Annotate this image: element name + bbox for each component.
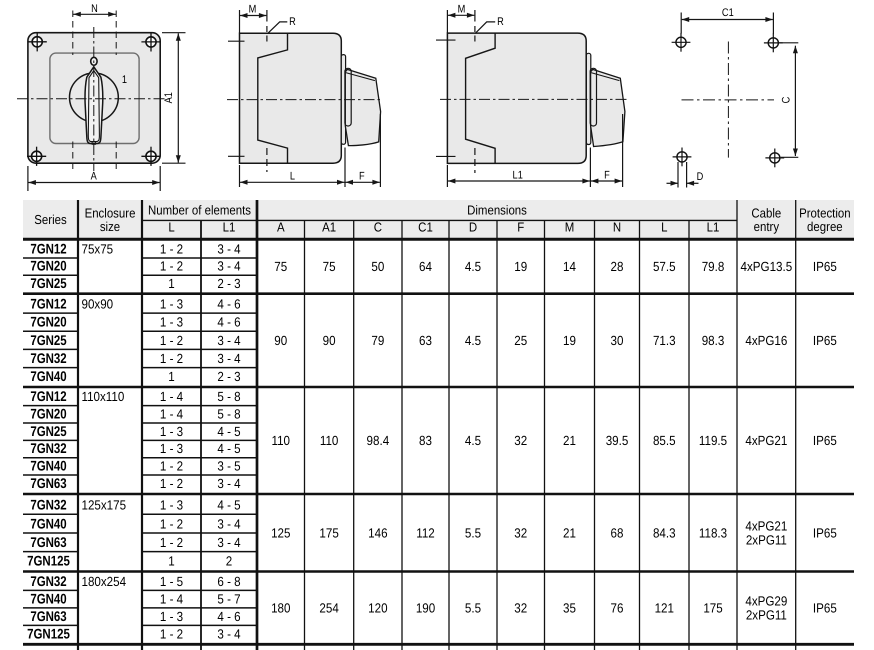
- svg-text:1 - 3: 1 - 3: [160, 498, 183, 513]
- svg-text:7GN32: 7GN32: [30, 497, 67, 513]
- svg-text:1 - 2: 1 - 2: [160, 259, 183, 274]
- svg-text:7GN32: 7GN32: [30, 573, 67, 589]
- svg-text:2xPG11: 2xPG11: [746, 533, 787, 548]
- svg-text:5.5: 5.5: [465, 526, 481, 541]
- svg-text:3 - 4: 3 - 4: [217, 241, 240, 256]
- svg-text:68: 68: [611, 526, 624, 541]
- svg-text:4 - 6: 4 - 6: [217, 315, 240, 330]
- svg-text:4xPG21: 4xPG21: [745, 519, 787, 534]
- svg-text:7GN20: 7GN20: [30, 258, 67, 274]
- svg-text:4.5: 4.5: [465, 333, 481, 348]
- svg-text:size: size: [100, 219, 120, 234]
- svg-text:7GN63: 7GN63: [30, 534, 67, 550]
- svg-text:35: 35: [563, 601, 576, 616]
- svg-text:3 - 4: 3 - 4: [217, 516, 240, 531]
- svg-text:146: 146: [368, 526, 387, 541]
- svg-text:A1: A1: [163, 92, 175, 103]
- svg-text:3 - 4: 3 - 4: [217, 626, 240, 641]
- svg-text:1 - 4: 1 - 4: [160, 406, 183, 421]
- svg-text:N: N: [91, 3, 98, 15]
- svg-text:125: 125: [271, 526, 290, 541]
- svg-text:7GN32: 7GN32: [30, 440, 67, 456]
- svg-text:85.5: 85.5: [653, 433, 676, 448]
- svg-text:64: 64: [419, 259, 432, 274]
- svg-text:1 - 2: 1 - 2: [160, 458, 183, 473]
- svg-text:1 - 3: 1 - 3: [160, 609, 183, 624]
- svg-text:175: 175: [703, 601, 722, 616]
- svg-text:4.5: 4.5: [465, 433, 481, 448]
- svg-text:4.5: 4.5: [465, 259, 481, 274]
- svg-text:IP65: IP65: [813, 333, 837, 348]
- svg-text:118.3: 118.3: [699, 526, 727, 541]
- svg-text:21: 21: [563, 433, 576, 448]
- svg-text:4 - 5: 4 - 5: [217, 441, 240, 456]
- svg-text:125x175: 125x175: [82, 498, 127, 513]
- svg-text:79: 79: [371, 333, 384, 348]
- svg-text:M: M: [565, 220, 575, 235]
- svg-text:32: 32: [514, 526, 527, 541]
- svg-text:7GN40: 7GN40: [30, 368, 67, 384]
- svg-text:7GN25: 7GN25: [30, 275, 67, 291]
- svg-text:7GN40: 7GN40: [30, 590, 67, 606]
- svg-text:7GN63: 7GN63: [30, 475, 67, 491]
- svg-text:75: 75: [323, 259, 336, 274]
- svg-text:3 - 4: 3 - 4: [217, 535, 240, 550]
- svg-text:110: 110: [320, 433, 339, 448]
- svg-text:110x110: 110x110: [82, 389, 125, 404]
- svg-text:121: 121: [655, 601, 674, 616]
- svg-text:1 - 2: 1 - 2: [160, 333, 183, 348]
- svg-text:180x254: 180x254: [82, 574, 127, 589]
- svg-text:180: 180: [271, 601, 290, 616]
- svg-text:110: 110: [271, 433, 290, 448]
- svg-text:98.4: 98.4: [367, 433, 390, 448]
- svg-text:39.5: 39.5: [606, 433, 629, 448]
- svg-text:2: 2: [226, 554, 232, 569]
- svg-text:2xPG11: 2xPG11: [746, 608, 787, 623]
- svg-text:4 - 6: 4 - 6: [217, 297, 240, 312]
- svg-text:1: 1: [122, 74, 127, 86]
- svg-text:F: F: [517, 220, 524, 235]
- svg-text:190: 190: [416, 601, 435, 616]
- svg-text:M: M: [249, 3, 257, 15]
- svg-text:R: R: [289, 16, 296, 28]
- svg-text:4xPG16: 4xPG16: [745, 333, 787, 348]
- svg-text:7GN12: 7GN12: [30, 388, 67, 404]
- svg-text:7GN25: 7GN25: [30, 332, 67, 348]
- svg-text:14: 14: [563, 259, 576, 274]
- svg-text:6 - 8: 6 - 8: [217, 574, 240, 589]
- svg-text:Number of elements: Number of elements: [148, 203, 251, 218]
- svg-text:28: 28: [611, 259, 624, 274]
- svg-text:C1: C1: [418, 220, 433, 235]
- svg-text:119.5: 119.5: [699, 433, 727, 448]
- svg-text:L1: L1: [513, 169, 523, 181]
- svg-text:4 - 6: 4 - 6: [217, 609, 240, 624]
- svg-text:Dimensions: Dimensions: [467, 203, 527, 218]
- svg-text:175: 175: [319, 526, 338, 541]
- svg-text:1 - 4: 1 - 4: [160, 389, 183, 404]
- svg-text:R: R: [497, 16, 504, 28]
- svg-text:83: 83: [419, 433, 432, 448]
- svg-text:4xPG21: 4xPG21: [745, 433, 787, 448]
- svg-text:32: 32: [514, 601, 527, 616]
- svg-text:7GN25: 7GN25: [30, 423, 67, 439]
- svg-text:3 - 4: 3 - 4: [217, 333, 240, 348]
- svg-text:3 - 4: 3 - 4: [217, 476, 240, 491]
- svg-text:76: 76: [611, 601, 624, 616]
- svg-text:90x90: 90x90: [82, 297, 114, 312]
- svg-text:1: 1: [168, 276, 174, 291]
- svg-text:84.3: 84.3: [653, 526, 676, 541]
- svg-text:IP65: IP65: [813, 526, 837, 541]
- svg-text:C1: C1: [722, 7, 734, 19]
- svg-text:2 - 3: 2 - 3: [217, 369, 240, 384]
- svg-text:1: 1: [168, 554, 174, 569]
- svg-text:3 - 4: 3 - 4: [217, 259, 240, 274]
- svg-text:5 - 7: 5 - 7: [217, 591, 240, 606]
- svg-text:1 - 3: 1 - 3: [160, 297, 183, 312]
- svg-text:25: 25: [514, 333, 527, 348]
- svg-text:IP65: IP65: [813, 433, 837, 448]
- svg-text:L: L: [290, 171, 295, 183]
- svg-text:degree: degree: [807, 219, 843, 234]
- svg-text:254: 254: [319, 601, 338, 616]
- svg-text:1 - 2: 1 - 2: [160, 351, 183, 366]
- svg-text:1 - 2: 1 - 2: [160, 476, 183, 491]
- svg-text:19: 19: [514, 259, 527, 274]
- svg-text:7GN20: 7GN20: [30, 405, 67, 421]
- svg-text:1 - 2: 1 - 2: [160, 535, 183, 550]
- svg-text:4xPG29: 4xPG29: [745, 594, 787, 609]
- svg-text:A1: A1: [322, 220, 336, 235]
- svg-text:A: A: [277, 220, 285, 235]
- svg-text:F: F: [604, 169, 610, 181]
- svg-text:90: 90: [323, 333, 336, 348]
- svg-text:32: 32: [514, 433, 527, 448]
- svg-text:98.3: 98.3: [702, 333, 725, 348]
- svg-text:L1: L1: [223, 220, 236, 235]
- svg-text:50: 50: [371, 259, 384, 274]
- svg-text:A: A: [91, 171, 98, 183]
- svg-text:63: 63: [419, 333, 432, 348]
- svg-text:7GN12: 7GN12: [30, 240, 67, 256]
- svg-text:7GN40: 7GN40: [30, 515, 67, 531]
- svg-text:5 - 8: 5 - 8: [217, 389, 240, 404]
- svg-text:7GN20: 7GN20: [30, 314, 67, 330]
- svg-text:7GN32: 7GN32: [30, 350, 67, 366]
- svg-text:3 - 4: 3 - 4: [217, 351, 240, 366]
- svg-text:1 - 2: 1 - 2: [160, 626, 183, 641]
- svg-text:1 - 4: 1 - 4: [160, 591, 183, 606]
- svg-text:L: L: [168, 220, 174, 235]
- svg-text:D: D: [697, 171, 704, 183]
- svg-text:71.3: 71.3: [653, 333, 676, 348]
- svg-text:2 - 3: 2 - 3: [217, 276, 240, 291]
- svg-text:1 - 3: 1 - 3: [160, 424, 183, 439]
- svg-text:7GN125: 7GN125: [27, 625, 70, 641]
- svg-text:D: D: [469, 220, 477, 235]
- svg-text:1: 1: [168, 369, 174, 384]
- svg-text:4 - 5: 4 - 5: [217, 424, 240, 439]
- svg-text:75x75: 75x75: [82, 241, 114, 256]
- svg-text:3 - 5: 3 - 5: [217, 458, 240, 473]
- svg-text:1 - 2: 1 - 2: [160, 516, 183, 531]
- svg-text:5 - 8: 5 - 8: [217, 406, 240, 421]
- svg-text:L: L: [661, 220, 667, 235]
- svg-text:N: N: [613, 220, 621, 235]
- svg-text:IP65: IP65: [813, 259, 837, 274]
- svg-text:4 - 5: 4 - 5: [217, 498, 240, 513]
- svg-text:Series: Series: [34, 212, 67, 227]
- svg-text:C: C: [780, 97, 792, 104]
- svg-text:1 - 2: 1 - 2: [160, 241, 183, 256]
- svg-text:7GN63: 7GN63: [30, 608, 67, 624]
- svg-text:7GN40: 7GN40: [30, 457, 67, 473]
- svg-text:90: 90: [274, 333, 287, 348]
- svg-text:21: 21: [563, 526, 576, 541]
- svg-text:112: 112: [416, 526, 435, 541]
- svg-text:79.8: 79.8: [702, 259, 725, 274]
- svg-text:M: M: [458, 3, 466, 15]
- svg-text:4xPG13.5: 4xPG13.5: [741, 259, 793, 274]
- svg-text:C: C: [374, 220, 382, 235]
- svg-text:57.5: 57.5: [653, 259, 676, 274]
- svg-text:19: 19: [563, 333, 576, 348]
- svg-text:7GN12: 7GN12: [30, 296, 67, 312]
- svg-text:5.5: 5.5: [465, 601, 481, 616]
- svg-text:1 - 3: 1 - 3: [160, 315, 183, 330]
- svg-text:75: 75: [274, 259, 287, 274]
- svg-text:IP65: IP65: [813, 601, 837, 616]
- svg-text:L1: L1: [707, 220, 720, 235]
- svg-text:1 - 5: 1 - 5: [160, 574, 183, 589]
- svg-text:7GN125: 7GN125: [27, 553, 70, 569]
- svg-text:120: 120: [368, 601, 387, 616]
- svg-text:1 - 3: 1 - 3: [160, 441, 183, 456]
- svg-text:entry: entry: [754, 219, 780, 234]
- svg-text:F: F: [359, 171, 365, 183]
- svg-text:30: 30: [611, 333, 624, 348]
